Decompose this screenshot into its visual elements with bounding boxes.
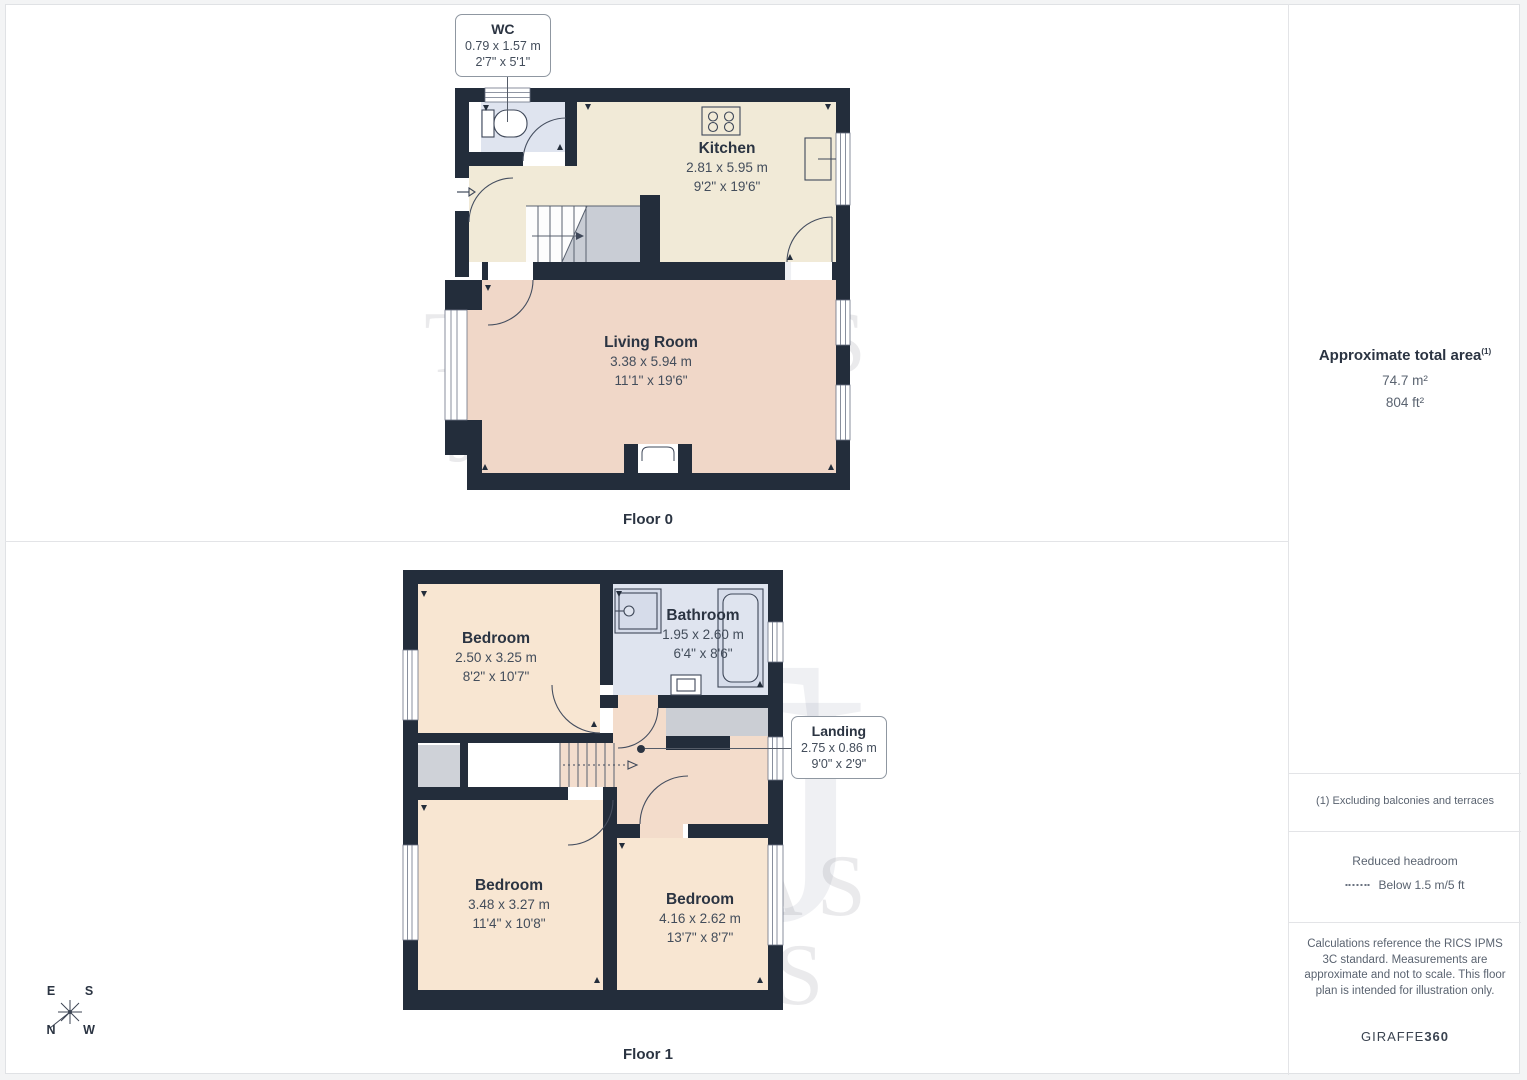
bedroom2-label: Bedroom 3.48 x 3.27 m 11'4" x 10'8": [468, 876, 550, 933]
reduced-headroom-legend: Below 1.5 m/5 ft: [1345, 878, 1464, 892]
total-area-imperial: 804 ft²: [1386, 395, 1424, 410]
compass-icon: E S N W: [34, 978, 106, 1050]
bathroom-label: Bathroom 1.95 x 2.60 m 6'4" x 8'6": [662, 606, 744, 663]
compass-west-label: W: [83, 1023, 95, 1037]
wc-leader-line: [507, 77, 508, 122]
bedroom3-label: Bedroom 4.16 x 2.62 m 13'7" x 8'7": [659, 890, 741, 947]
footnote-marker: (1): [1481, 347, 1491, 356]
bedroom1-label: Bedroom 2.50 x 3.25 m 8'2" x 10'7": [455, 629, 537, 686]
total-area-metric: 74.7 m²: [1382, 373, 1428, 388]
area-footnote: (1) Excluding balconies and terraces: [1316, 795, 1494, 807]
floor1-caption: Floor 1: [623, 1046, 673, 1063]
sidebar-divider-1: [1288, 773, 1521, 774]
sidebar-divider-3: [1288, 922, 1521, 923]
floor-panels-divider: [5, 541, 1288, 542]
giraffe360-logo: GIRAFFE360: [1361, 1029, 1449, 1044]
disclaimer-text: Calculations reference the RICS IPMS 3C …: [1303, 937, 1507, 999]
reduced-headroom-title: Reduced headroom: [1352, 854, 1457, 868]
floor0-caption: Floor 0: [623, 511, 673, 528]
landing-callout: Landing 2.75 x 0.86 m 9'0" x 2'9": [791, 716, 887, 779]
compass-north-label: N: [46, 1023, 55, 1037]
wc-callout: WC 0.79 x 1.57 m 2'7" x 5'1": [455, 14, 551, 77]
sidebar-left-border: [1288, 4, 1289, 1075]
landing-leader-line: [645, 748, 791, 749]
living-room-label: Living Room 3.38 x 5.94 m 11'1" x 19'6": [604, 333, 698, 390]
kitchen-label: Kitchen 2.81 x 5.95 m 9'2" x 19'6": [686, 139, 768, 196]
floor0-plan: [438, 78, 858, 498]
floorplan-page: { "floors": { "floor0": { "label": "Floo…: [0, 0, 1527, 1080]
sidebar-divider-2: [1288, 831, 1521, 832]
reduced-headroom-dotted-line-icon: [1345, 884, 1369, 888]
compass-south-label: S: [85, 984, 93, 998]
total-area-title: Approximate total area(1): [1319, 347, 1491, 364]
compass-east-label: E: [47, 984, 55, 998]
